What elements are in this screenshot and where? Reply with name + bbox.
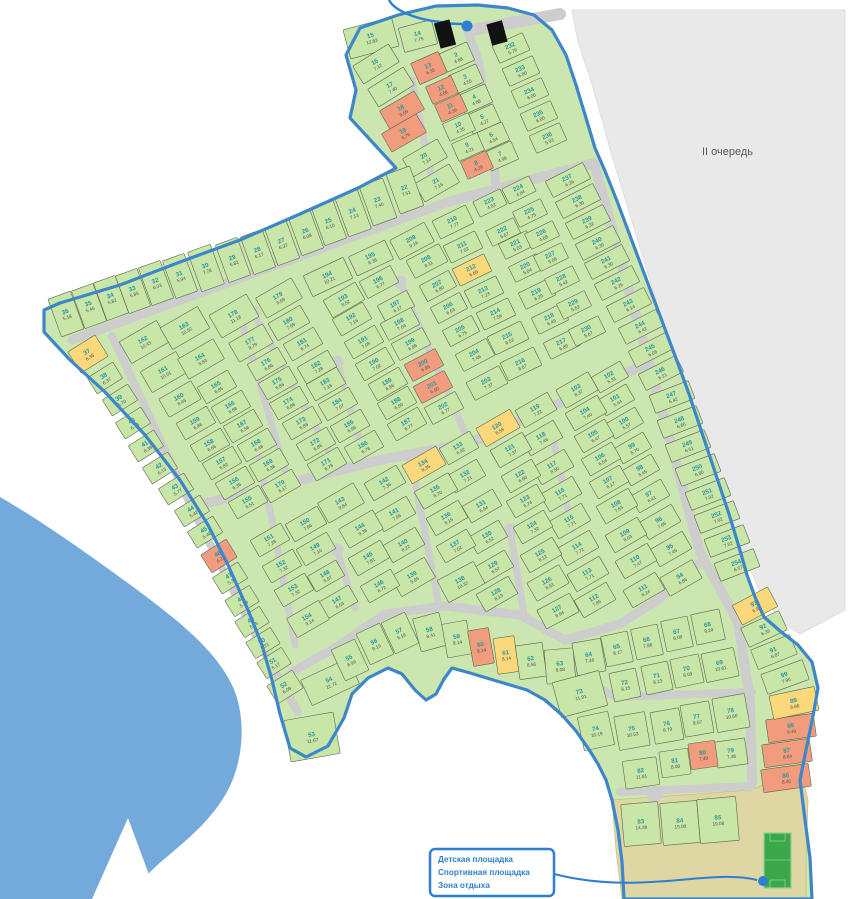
plot-82[interactable]: 8211.81: [622, 757, 660, 789]
legend-box: Детская площадка Спортивная площадка Зон…: [430, 849, 554, 896]
plot-71[interactable]: 718.13: [641, 661, 673, 695]
culdesac-bulb: [647, 786, 663, 802]
plot-85[interactable]: 8519.08: [697, 796, 740, 843]
legend-line-rest: Зона отдыха: [438, 881, 490, 890]
plot-64[interactable]: 647.46: [572, 638, 606, 676]
plot-map: II очередь 24.8834.5544.8854.2: [0, 0, 850, 899]
plot-70[interactable]: 708.09: [670, 654, 704, 688]
plot-area: 14.39: [635, 825, 648, 831]
legend-line-sports: Спортивная площадка: [438, 868, 530, 877]
plot-area: 15.00: [674, 824, 687, 830]
plot-78[interactable]: 7810.60: [712, 693, 750, 732]
plot-76[interactable]: 768.79: [650, 708, 684, 745]
plot-area: 19.08: [712, 821, 725, 827]
map-canvas: II очередь 24.8834.5544.8854.2: [0, 0, 850, 899]
plot-area: 8.08: [556, 667, 566, 673]
field-marker[interactable]: [758, 876, 768, 886]
plot-84[interactable]: 8415.00: [660, 800, 701, 845]
plot-77[interactable]: 778.07: [680, 701, 714, 738]
plot-83[interactable]: 8314.39: [621, 801, 662, 846]
plot-68[interactable]: 689.24: [691, 609, 726, 645]
entrance-marker[interactable]: [462, 21, 473, 32]
plot-74[interactable]: 7410.19: [577, 711, 614, 751]
phase2-label: II очередь: [702, 146, 753, 158]
plot-72[interactable]: 728.15: [609, 668, 641, 702]
plot-81[interactable]: 818.08: [659, 748, 691, 778]
plot-62[interactable]: 628.56: [515, 642, 546, 679]
plot-75[interactable]: 7510.53: [614, 712, 650, 751]
legend-line-children: Детская площадка: [438, 855, 513, 864]
plot-79[interactable]: 797.46: [714, 738, 748, 768]
plot-80[interactable]: 807.49: [688, 740, 718, 770]
